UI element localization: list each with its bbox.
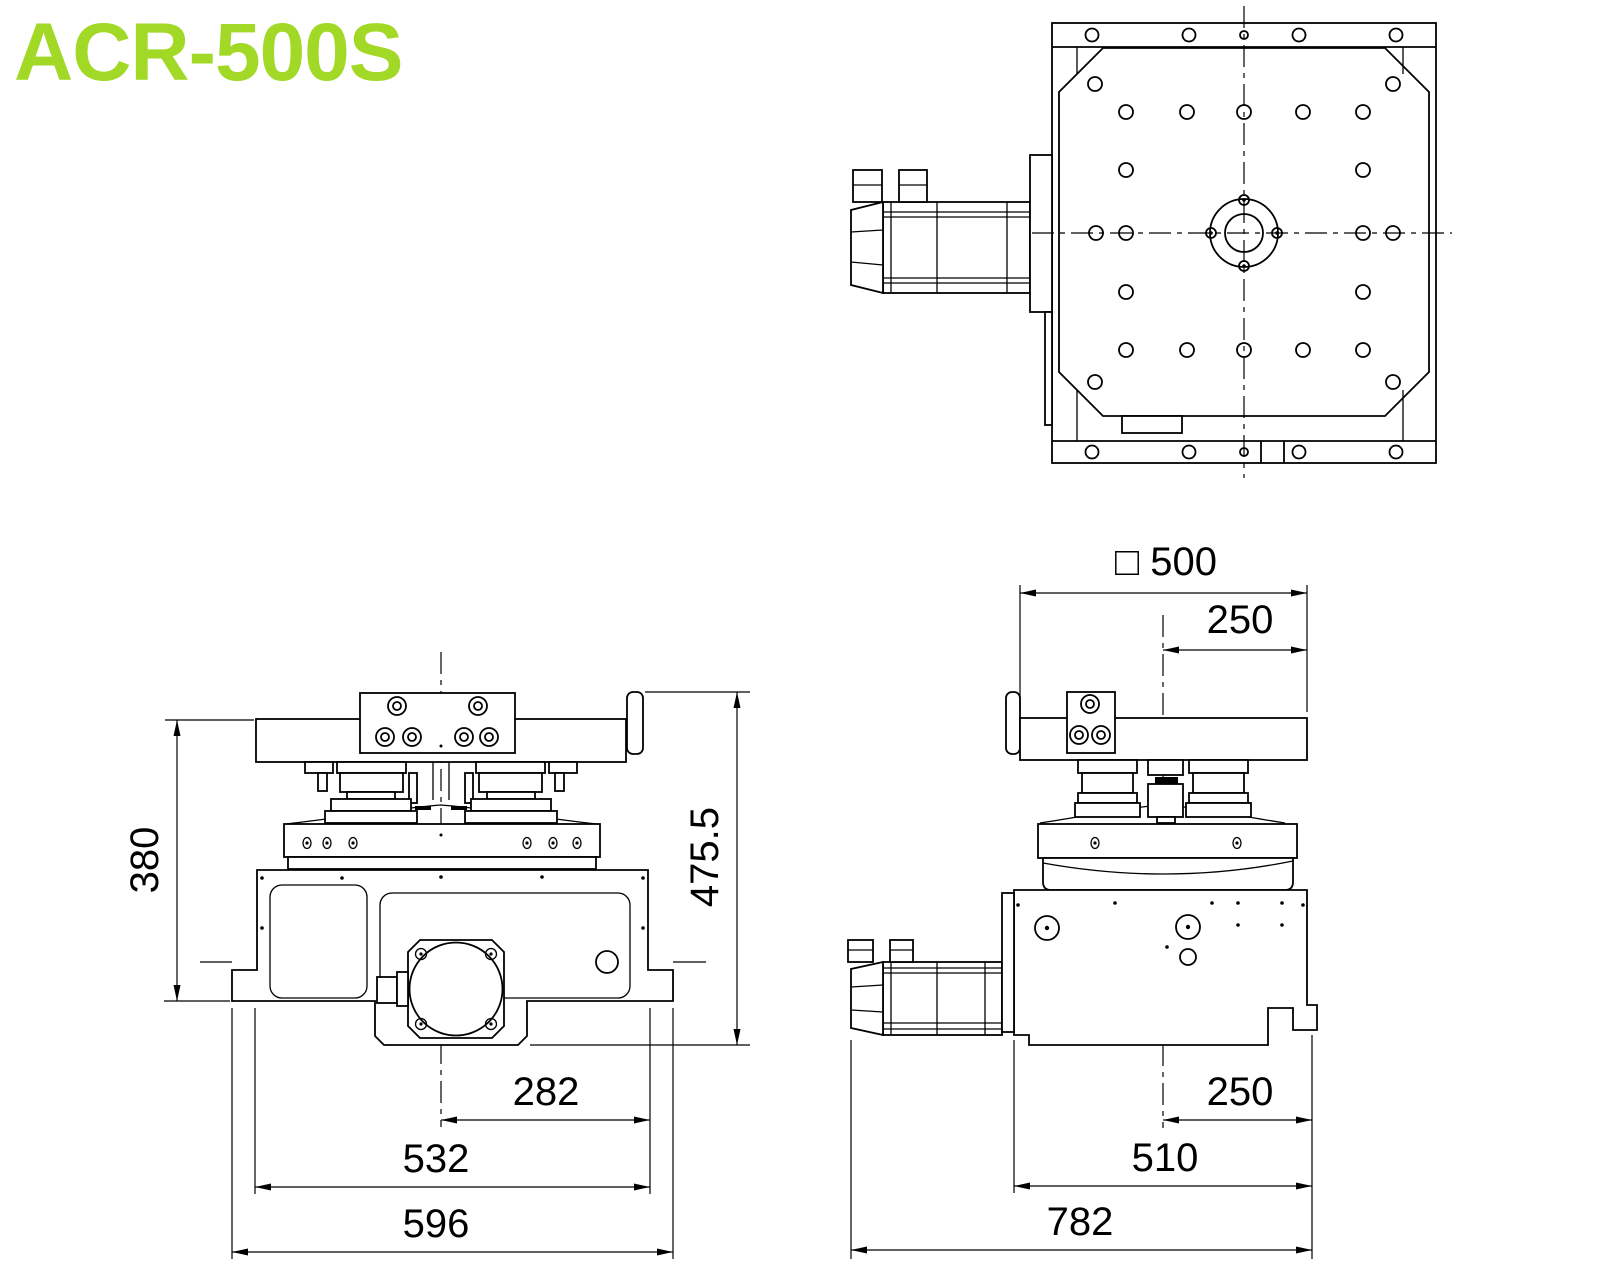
side-motor [848,893,1014,1035]
clamp-block [360,693,515,753]
dim-body-width: 532 [403,1137,470,1181]
motor-connector [899,170,927,202]
dim-center-top: 250 [1207,598,1274,642]
motor-connector [848,940,873,962]
top-view [851,6,1452,478]
rotary-body [284,824,600,857]
bearing-stack-right [1186,760,1251,817]
clamp-block [1067,692,1115,753]
worm-shaft [1148,760,1183,823]
motor-connector [890,940,913,962]
dim-center-to-edge: 282 [513,1070,580,1114]
bearing-stack-left [1075,760,1140,817]
bearing-stack-right [465,762,577,823]
bearing-stack-left [305,762,417,823]
motor-connector [853,170,882,202]
table-plate [1020,718,1307,760]
front-view: 380 475.5 282 532 596 [123,652,750,1259]
top-motor [851,155,1052,425]
datasheet-page: ACR-500S [0,0,1600,1280]
drawing-canvas: 380 475.5 282 532 596 [0,0,1600,1280]
base-housing [1014,890,1317,1045]
dim-table-height: 380 [123,827,167,894]
dim-table-square: □ 500 [1115,540,1217,584]
dim-overall-length: 782 [1047,1200,1114,1244]
dim-base-length: 510 [1132,1136,1199,1180]
reference-tab [1006,692,1020,754]
side-view: □ 500 250 250 510 782 [848,540,1317,1259]
dim-overall-height: 475.5 [683,807,727,907]
reference-tab [627,692,643,754]
dim-center-bottom: 250 [1207,1070,1274,1114]
rotary-body [1038,824,1297,858]
dim-base-width: 596 [403,1202,470,1246]
motor-flange [1002,893,1014,1032]
